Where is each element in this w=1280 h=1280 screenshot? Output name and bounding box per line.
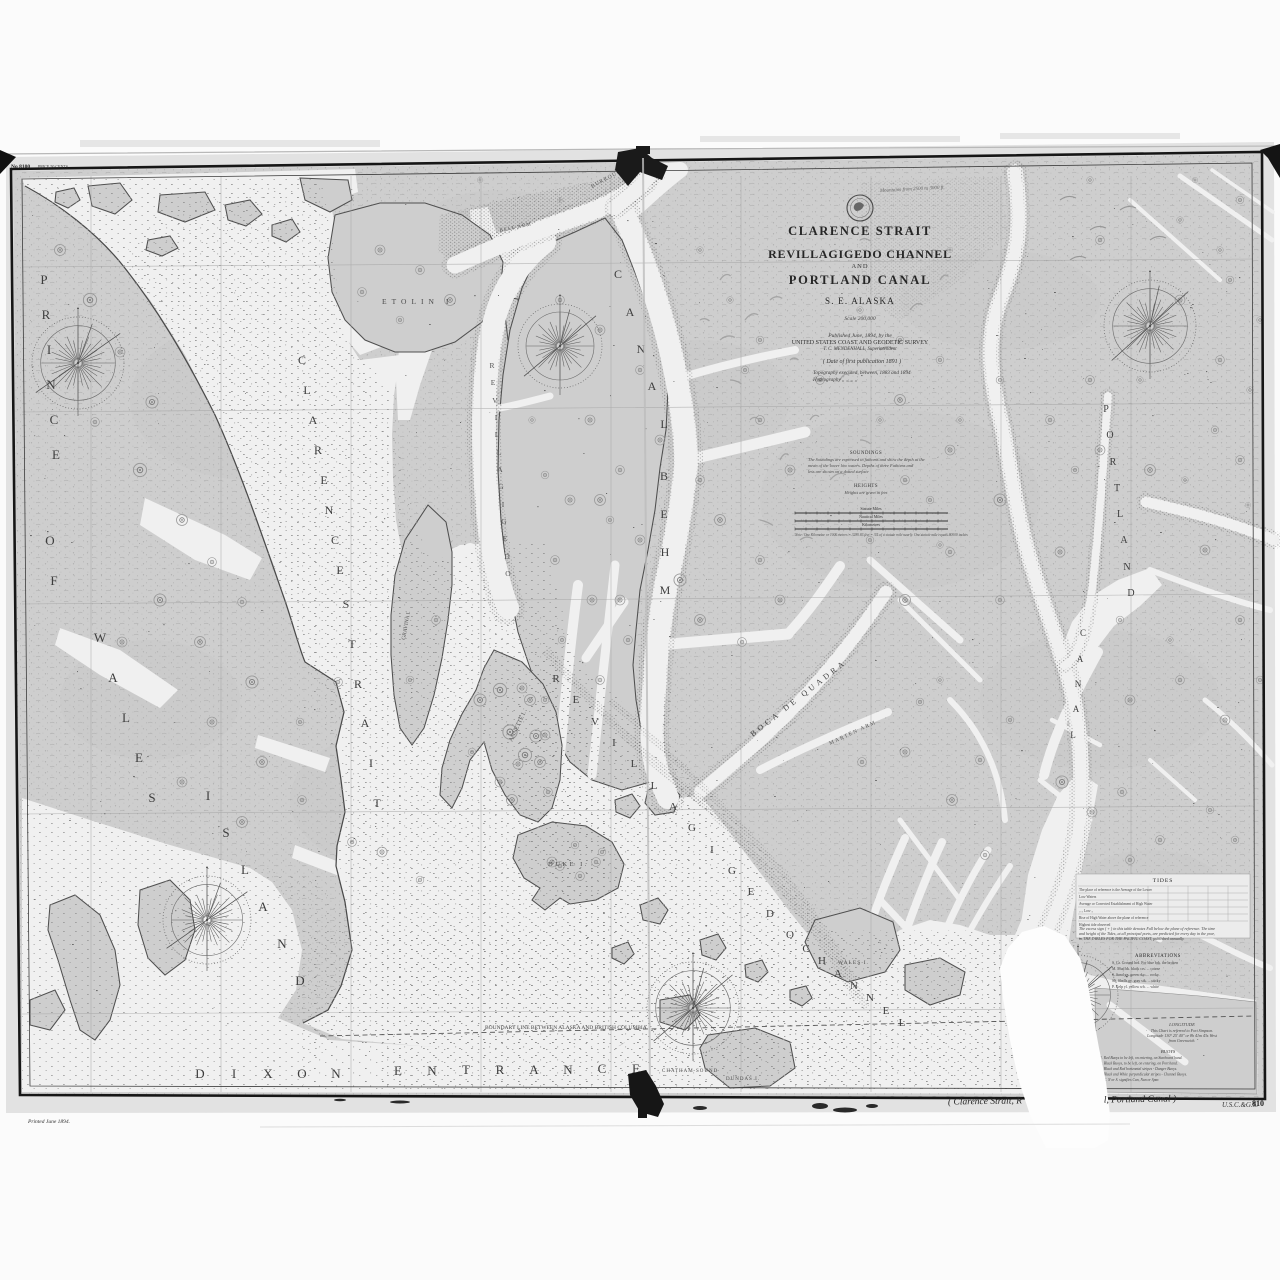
svg-text:HEIGHTS: HEIGHTS (854, 484, 878, 489)
svg-text:R: R (42, 307, 51, 322)
svg-text:S: S (148, 790, 155, 805)
svg-text:O: O (297, 1066, 306, 1081)
svg-text:T: T (348, 637, 356, 651)
svg-text:L: L (241, 862, 249, 877)
svg-text:mean of the lower low waters.: mean of the lower low waters. Depths of … (808, 463, 914, 468)
svg-text:No 8100: No 8100 (11, 164, 30, 170)
svg-text:C: C (50, 412, 59, 427)
svg-text:M. Mud bk. bla: M. Mud bk. black crs. ... coarse (1112, 967, 1160, 971)
svg-text:G: G (688, 822, 696, 834)
svg-text:E: E (320, 473, 327, 487)
svg-text:A: A (361, 716, 370, 730)
svg-text:S. Sand gn. gre: S. Sand gn. green rky. ... rocky (1112, 973, 1159, 977)
svg-text:I: I (612, 737, 616, 749)
svg-text:Kilometres: Kilometres (862, 522, 880, 527)
svg-text:A: A (834, 968, 842, 980)
svg-text:N: N (1075, 679, 1082, 689)
svg-text:S. E. ALASKA: S. E. ALASKA (825, 296, 895, 306)
svg-text:C: C (298, 353, 306, 367)
svg-text:V: V (591, 716, 599, 728)
svg-text:Nautical Miles: Nautical Miles (859, 514, 883, 519)
svg-text:4. Black and White perpendicul: 4. Black and White perpendicular stripes… (1100, 1073, 1187, 1077)
svg-text:A: A (626, 305, 635, 319)
svg-text:R: R (1110, 457, 1117, 468)
svg-text:N: N (427, 1063, 437, 1078)
svg-text:D: D (1127, 588, 1134, 599)
svg-text:N: N (866, 992, 874, 1004)
svg-text:B: B (660, 469, 668, 483)
svg-text:A: A (108, 670, 118, 685)
svg-text:S: S (343, 597, 350, 611)
svg-text:H: H (661, 545, 670, 559)
svg-text:E: E (660, 507, 667, 521)
svg-text:N: N (850, 980, 858, 992)
svg-text:Scale 200,000: Scale 200,000 (844, 316, 875, 322)
svg-text:C: C (614, 267, 622, 281)
svg-text:L: L (1070, 730, 1076, 740)
svg-text:N: N (1123, 562, 1130, 573)
svg-text:L: L (660, 417, 667, 431)
svg-text:I: I (206, 788, 210, 803)
svg-text:PORTLAND CANAL: PORTLAND CANAL (789, 273, 931, 287)
svg-text:E: E (336, 563, 343, 577)
svg-text:N: N (331, 1066, 341, 1081)
svg-text:T: T (373, 796, 381, 810)
svg-text:L: L (1117, 509, 1123, 520)
svg-text:BOUNDARY LINE BETWEEN ALASK: BOUNDARY LINE BETWEEN ALASKA AND BRITISH… (485, 1025, 647, 1031)
svg-text:S. Gr. Ground hrd. For b: S. Gr. Ground hrd. For blue brk. the bro… (1112, 961, 1178, 965)
svg-text:P. Kelp yl. ye: P. Kelp yl. yellow wh. ... white (1112, 985, 1159, 989)
svg-text:R: R (489, 361, 494, 370)
svg-text:BUOYS: BUOYS (1161, 1049, 1176, 1054)
svg-text:T: T (462, 1062, 470, 1077)
svg-text:R: R (496, 1062, 505, 1077)
svg-text:Rise of High Water above the p: Rise of High Water above the plane of re… (1079, 916, 1149, 920)
svg-text:Printed June 1894.: Printed June 1894. (27, 1118, 70, 1125)
svg-text:810: 810 (1252, 1099, 1264, 1108)
svg-text:3. Black and Red horizontal st: 3. Black and Red horizontal stripes - Da… (1100, 1067, 1177, 1071)
svg-text:The place of reference is the: The place of reference is the Average of… (1079, 888, 1153, 892)
svg-text:TIDES: TIDES (1153, 878, 1174, 884)
svg-text:R: R (552, 673, 560, 685)
svg-text:L: L (303, 383, 310, 397)
svg-text:E: E (491, 378, 496, 387)
svg-text:R: R (354, 677, 362, 691)
svg-text:DUKE I.: DUKE I. (548, 861, 589, 868)
svg-text:UNITED STATES COAST AND GEODET: UNITED STATES COAST AND GEODETIC SURVEY (792, 340, 929, 346)
svg-text:Heights are given in feet: Heights are given in feet (844, 490, 889, 495)
svg-text:A: A (1073, 704, 1080, 714)
svg-text:E: E (503, 534, 508, 543)
svg-text:Average or Corrected Establish: Average or Corrected Establishment of Hi… (1079, 902, 1153, 906)
svg-text:( Clarence Strait, R: ( Clarence Strait, R (948, 1095, 1022, 1107)
svg-text:A: A (1077, 654, 1084, 664)
svg-text:L: L (899, 1017, 906, 1029)
svg-text:DUNDAS I.: DUNDAS I. (726, 1077, 760, 1082)
svg-text:A: A (309, 413, 318, 427)
svg-text:V: V (492, 396, 498, 405)
svg-text:F: F (50, 573, 57, 588)
svg-text:Statute Miles: Statute Miles (860, 506, 882, 511)
svg-text:M: M (660, 583, 671, 597)
svg-text:REVILLAGIGEDO CHANNEL: REVILLAGIGEDO CHANNEL (768, 247, 952, 261)
svg-text:C: C (331, 533, 339, 547)
svg-text:Sh. Shells gy. gra: Sh. Shells gy. gray stk. ... sticky (1112, 979, 1161, 983)
svg-text:W: W (94, 630, 107, 645)
svg-text:O: O (505, 569, 511, 578)
svg-text:less are shown on a dotted sur: less are shown on a dotted surface (808, 469, 869, 474)
svg-text:SOUNDINGS: SOUNDINGS (850, 451, 882, 456)
svg-text:C: C (802, 943, 809, 955)
svg-text:D: D (504, 552, 510, 561)
svg-text:E: E (135, 750, 143, 765)
svg-text:T: T (1114, 483, 1120, 494)
svg-text:D: D (766, 908, 774, 920)
svg-text:A: A (648, 379, 657, 393)
svg-text:E: E (748, 886, 755, 898)
svg-text:P: P (40, 272, 47, 287)
svg-text:E: E (394, 1063, 402, 1078)
svg-text:A: A (497, 465, 503, 474)
svg-text:C: C (1080, 628, 1086, 638)
svg-text:L: L (651, 780, 658, 792)
svg-text:A: A (529, 1062, 539, 1077)
svg-text:I: I (232, 1066, 236, 1081)
svg-text:( Date of first publication 18: ( Date of first publication 1891 ) (823, 358, 901, 365)
svg-text:A: A (1120, 535, 1128, 546)
svg-text:R: R (314, 443, 322, 457)
svg-text:O: O (1106, 430, 1113, 441)
svg-text:O: O (45, 533, 54, 548)
svg-text:A: A (669, 801, 677, 813)
svg-text:S: S (222, 825, 229, 840)
svg-text:WALES I.: WALES I. (838, 960, 869, 966)
svg-text:N: N (46, 377, 56, 392)
svg-text:ABBREVIATIONS: ABBREVIATIONS (1135, 954, 1181, 959)
svg-text:X: X (263, 1066, 273, 1081)
svg-text:from Greenwich.: from Greenwich. (1169, 1038, 1196, 1043)
svg-text:The Soundings are expressed in: The Soundings are expressed in fathoms a… (808, 457, 925, 462)
svg-text:PRICE 50 CENTS: PRICE 50 CENTS (38, 164, 68, 169)
svg-text:E: E (52, 447, 60, 462)
svg-text:G: G (728, 865, 736, 877)
svg-text:CHATHAM SOUND: CHATHAM SOUND (662, 1069, 718, 1074)
svg-text:L: L (497, 448, 502, 457)
svg-text:C: C (598, 1061, 607, 1076)
svg-text:N: N (563, 1062, 573, 1077)
svg-text:LONGITUDE: LONGITUDE (1168, 1022, 1195, 1027)
svg-text:T. C. MENDENHALL, Superintende: T. C. MENDENHALL, Superintendent (823, 347, 897, 352)
svg-text:Published June, 1894,: Published June, 1894, by the (827, 332, 892, 339)
svg-text:N: N (325, 503, 334, 517)
svg-text:Hydrography „ „: Hydrography „ „ „ „ (812, 377, 858, 383)
svg-text:L: L (495, 430, 500, 439)
svg-text:G: G (501, 517, 507, 526)
svg-text:A: A (258, 899, 268, 914)
svg-text:N: N (277, 936, 287, 951)
svg-text:P: P (1103, 404, 1109, 415)
svg-text:l, Portland Canal ): l, Portland Canal ) (1104, 1093, 1176, 1105)
svg-text:O: O (786, 929, 794, 941)
svg-text:D: D (295, 973, 304, 988)
svg-text:AND: AND (851, 263, 868, 270)
svg-text:D: D (195, 1066, 204, 1081)
svg-text:I: I (47, 342, 51, 357)
svg-text:Topography executed, between: Topography executed, between, 1883 and 1… (813, 369, 911, 376)
svg-text:I: I (369, 756, 373, 770)
svg-text:Note: One Kilometre or 1000 me: Note: One Kilometre or 1000 metres = 328… (794, 533, 968, 537)
svg-text:L: L (631, 758, 638, 770)
svg-text:E: E (573, 694, 580, 706)
svg-text:CLARENCE STRAIT: CLARENCE STRAIT (788, 224, 932, 238)
svg-text:Low Waters: Low Waters (1079, 895, 1097, 899)
svg-text:L: L (122, 710, 130, 725)
svg-text:H: H (818, 955, 826, 967)
svg-text:G: G (498, 482, 504, 491)
svg-text:I: I (710, 844, 714, 856)
svg-text:ETOLIN I.: ETOLIN I. (382, 297, 460, 306)
svg-text:E: E (883, 1005, 890, 1017)
